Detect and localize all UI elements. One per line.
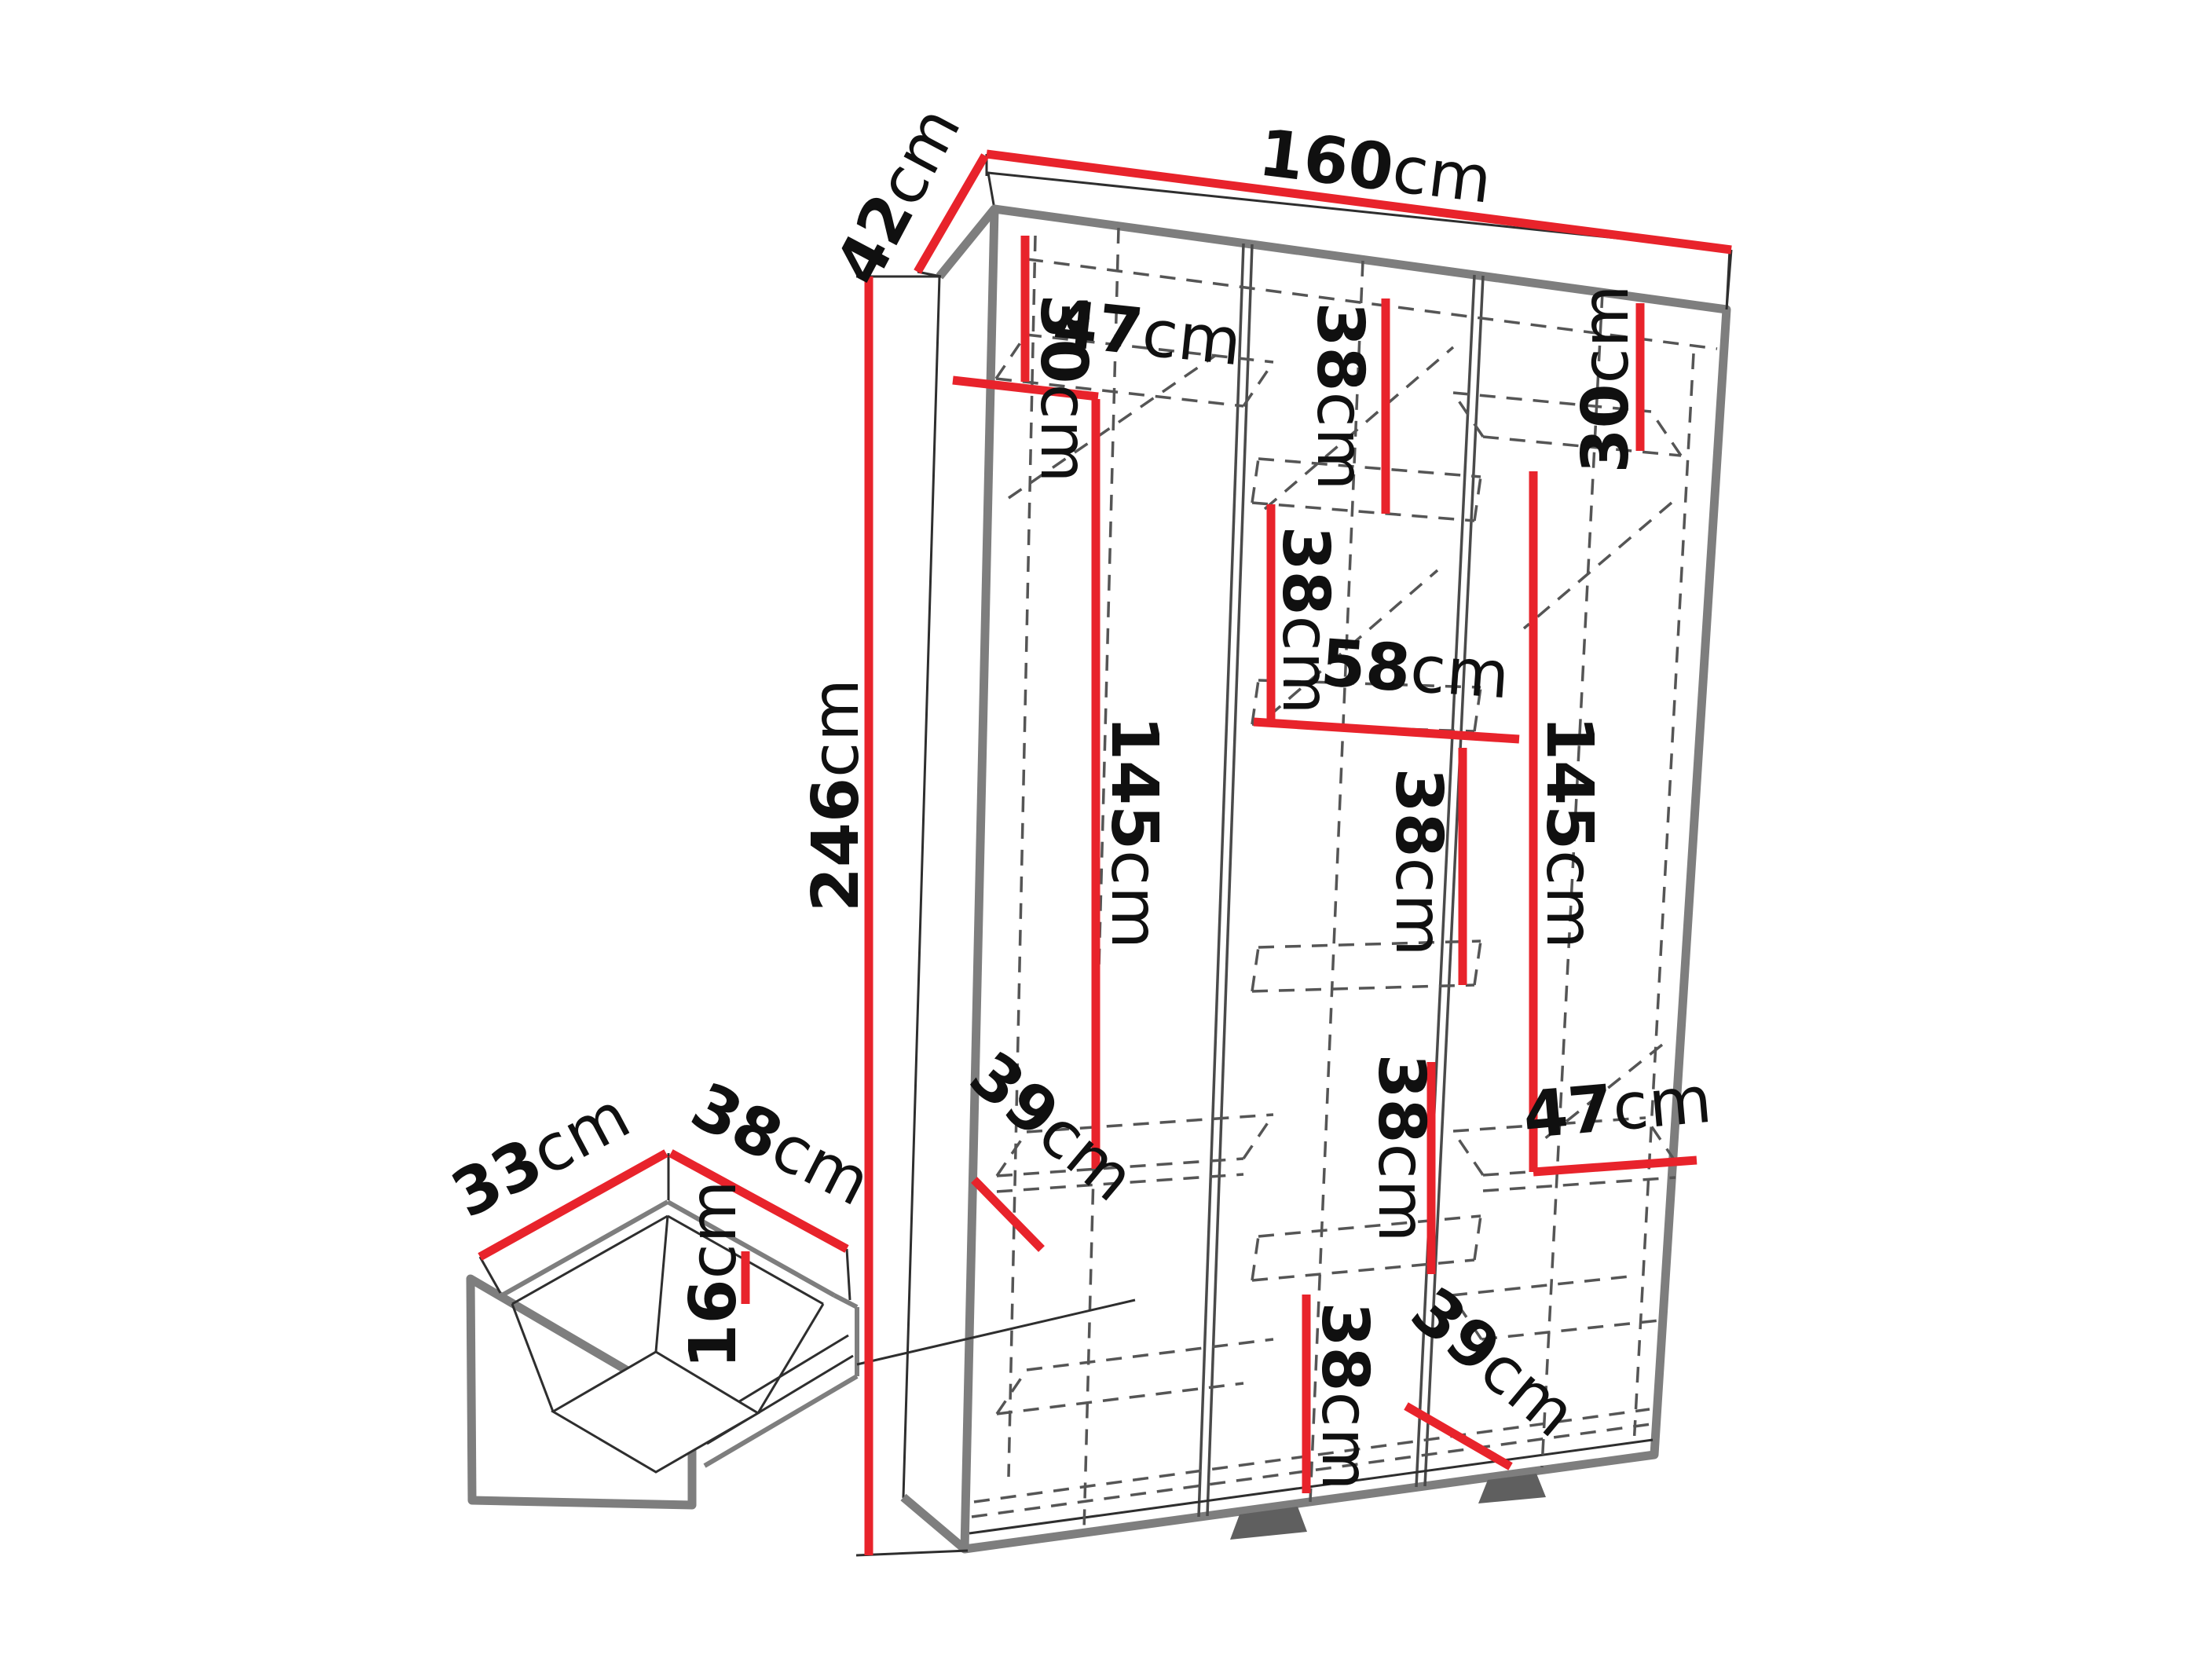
dim-label-right-top-height: 30cm	[1569, 284, 1643, 473]
dim-label-mid-width: 58cm	[1318, 626, 1512, 714]
dim-label-mid-shelf5-height: 38cm	[1307, 1302, 1382, 1491]
dim-label-mid-top-height: 38cm	[1302, 302, 1377, 491]
drawer-inset	[471, 1202, 857, 1505]
dim-label-mid-shelf4-height: 38cm	[1364, 1053, 1438, 1243]
drawer-corner	[758, 1304, 823, 1413]
dim-label-total-height: 246cm	[799, 678, 873, 912]
ext-tick	[847, 1249, 850, 1300]
dim-label-total-width: 160cm	[1255, 115, 1496, 218]
dimension-diagram: 160cm42cm246cm30cm47cm38cm30cm38cm58cm38…	[0, 0, 2212, 1659]
dim-label-drawer-height: 16cm	[676, 1179, 751, 1368]
dim-label-drawer-depth: 33cm	[440, 1078, 642, 1232]
drawer-corner	[656, 1216, 668, 1352]
dim-label-right-width: 47cm	[1520, 1063, 1715, 1154]
dim-label-right-hang-height: 145cm	[1532, 716, 1606, 950]
drawer-right-shell	[834, 1295, 857, 1307]
dim-label-left-hang-height: 145cm	[1097, 716, 1171, 950]
dim-label-mid-shelf3-height: 38cm	[1381, 767, 1456, 957]
drawer-left-rim	[502, 1202, 668, 1295]
